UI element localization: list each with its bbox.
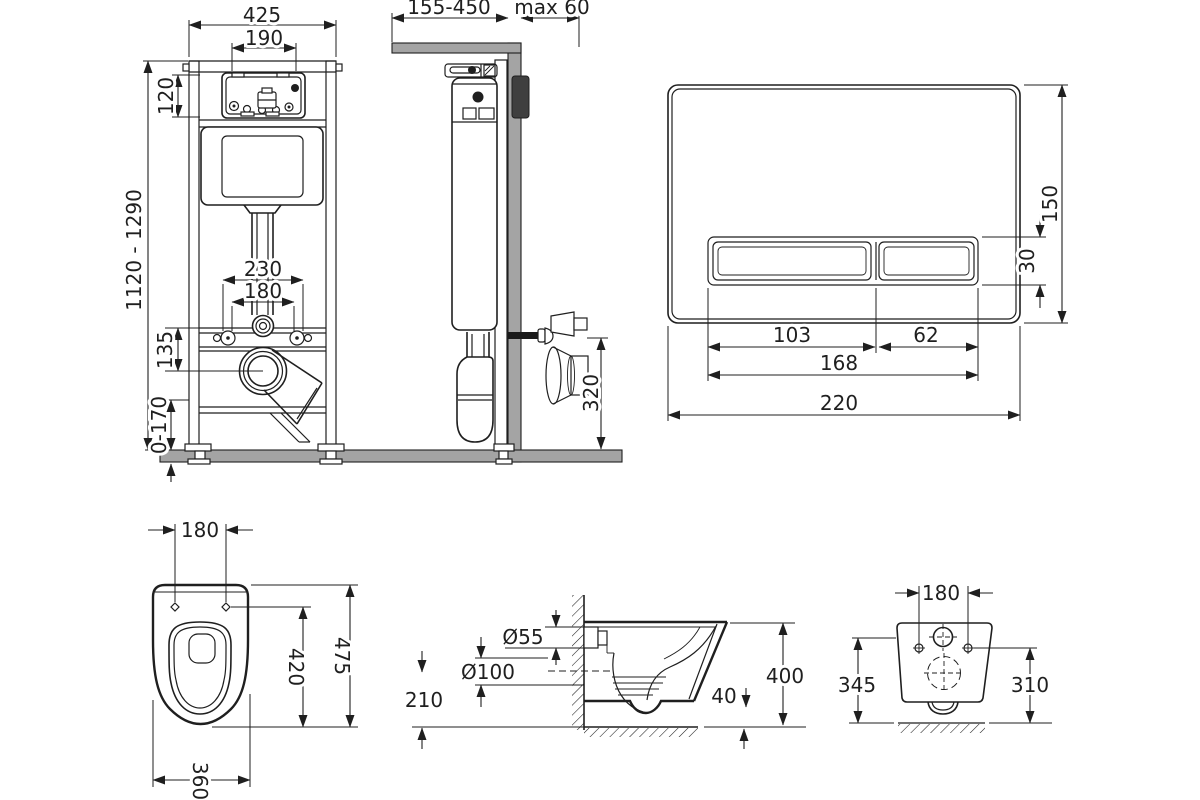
flush-plate-view: 150 30 103 62 168 220 [668, 85, 1068, 421]
left-seat-hole [171, 603, 179, 611]
wall-hatch [572, 595, 584, 730]
frame-side-view: 155-450 max 60 320 [392, 0, 608, 464]
waste-outlet-front [239, 348, 322, 443]
flush-buttons [708, 237, 978, 285]
dim-fixing-inner: 180 [244, 279, 282, 303]
cistern-tank-side [452, 78, 497, 357]
bowl-side-view: Ø55 Ø100 210 40 400 [405, 595, 806, 749]
dim-button-height: 30 [1015, 248, 1039, 273]
floor-band [160, 450, 622, 462]
dim-hole-spacing-top: 180 [181, 518, 219, 542]
technical-drawing-page: 425 190 120 1120 - 1290 230 180 135 0-17… [0, 0, 1200, 800]
dim-depth-range: 155-450 [407, 0, 491, 19]
dim-frame-width: 425 [243, 3, 281, 27]
inlet-fitting [584, 627, 598, 648]
frame-front-view: 425 190 120 1120 - 1290 230 180 135 0-17… [122, 3, 344, 482]
dim-inlet-diameter: Ø55 [502, 625, 543, 649]
bowl-top-view: 180 420 475 360 [148, 518, 358, 800]
dim-plate-width: 220 [820, 391, 858, 415]
dim-outlet-drop: 135 [153, 331, 177, 369]
dim-rim-drop: 40 [711, 684, 736, 708]
dim-rear-hole-spacing: 180 [922, 581, 960, 605]
dim-height-left: 345 [838, 673, 876, 697]
dim-fixing-outer: 230 [244, 257, 282, 281]
top-fixing-bracket [445, 64, 497, 77]
dim-install-height: 1120 - 1290 [122, 189, 146, 311]
dim-height-right: 310 [1011, 673, 1049, 697]
dim-big-button-width: 103 [773, 323, 811, 347]
dim-bowl-width: 360 [188, 762, 212, 800]
dim-leg-range: 0-170 [147, 396, 171, 454]
right-seat-hole [222, 603, 230, 611]
bowl-side-floor [412, 727, 806, 737]
side-foot [494, 444, 514, 451]
bowl-rear-floor [849, 723, 1052, 733]
bowl-top-dimensions: 180 420 475 360 [148, 518, 358, 800]
right-hanger-tab [336, 64, 342, 71]
dim-bowl-height: 400 [766, 664, 804, 688]
dim-wall-max: max 60 [514, 0, 589, 19]
dim-opening-height: 120 [154, 77, 178, 115]
technical-drawing-canvas: 425 190 120 1120 - 1290 230 180 135 0-17… [0, 0, 1200, 800]
dim-buttons-total-width: 168 [820, 351, 858, 375]
cistern-access-box [222, 73, 305, 118]
box-bolt [291, 84, 299, 92]
small-flush-button [879, 242, 974, 280]
frame-left-post [189, 61, 199, 450]
dim-opening-width: 190 [245, 26, 283, 50]
flush-jet [189, 634, 215, 663]
dim-plate-height: 150 [1038, 185, 1062, 223]
left-hanger-tab [183, 64, 189, 71]
dim-small-button-width: 62 [913, 323, 938, 347]
frame-right-post [326, 61, 336, 450]
dim-total-depth: 475 [330, 637, 354, 675]
bowl-outline-rear [897, 623, 992, 702]
wall-mount-bracket [512, 76, 529, 118]
dim-outlet-diameter: Ø100 [461, 660, 515, 684]
top-support-rail [392, 43, 521, 53]
bowl-rear-view: 180 345 310 [838, 581, 1052, 733]
flush-pipe-connection [253, 316, 274, 337]
dim-inner-depth: 420 [284, 648, 308, 686]
outlet-elbow-side [457, 357, 493, 442]
big-flush-button [713, 242, 871, 280]
dim-outlet-height: 320 [579, 374, 603, 412]
dim-outlet-center-height: 210 [405, 688, 443, 712]
